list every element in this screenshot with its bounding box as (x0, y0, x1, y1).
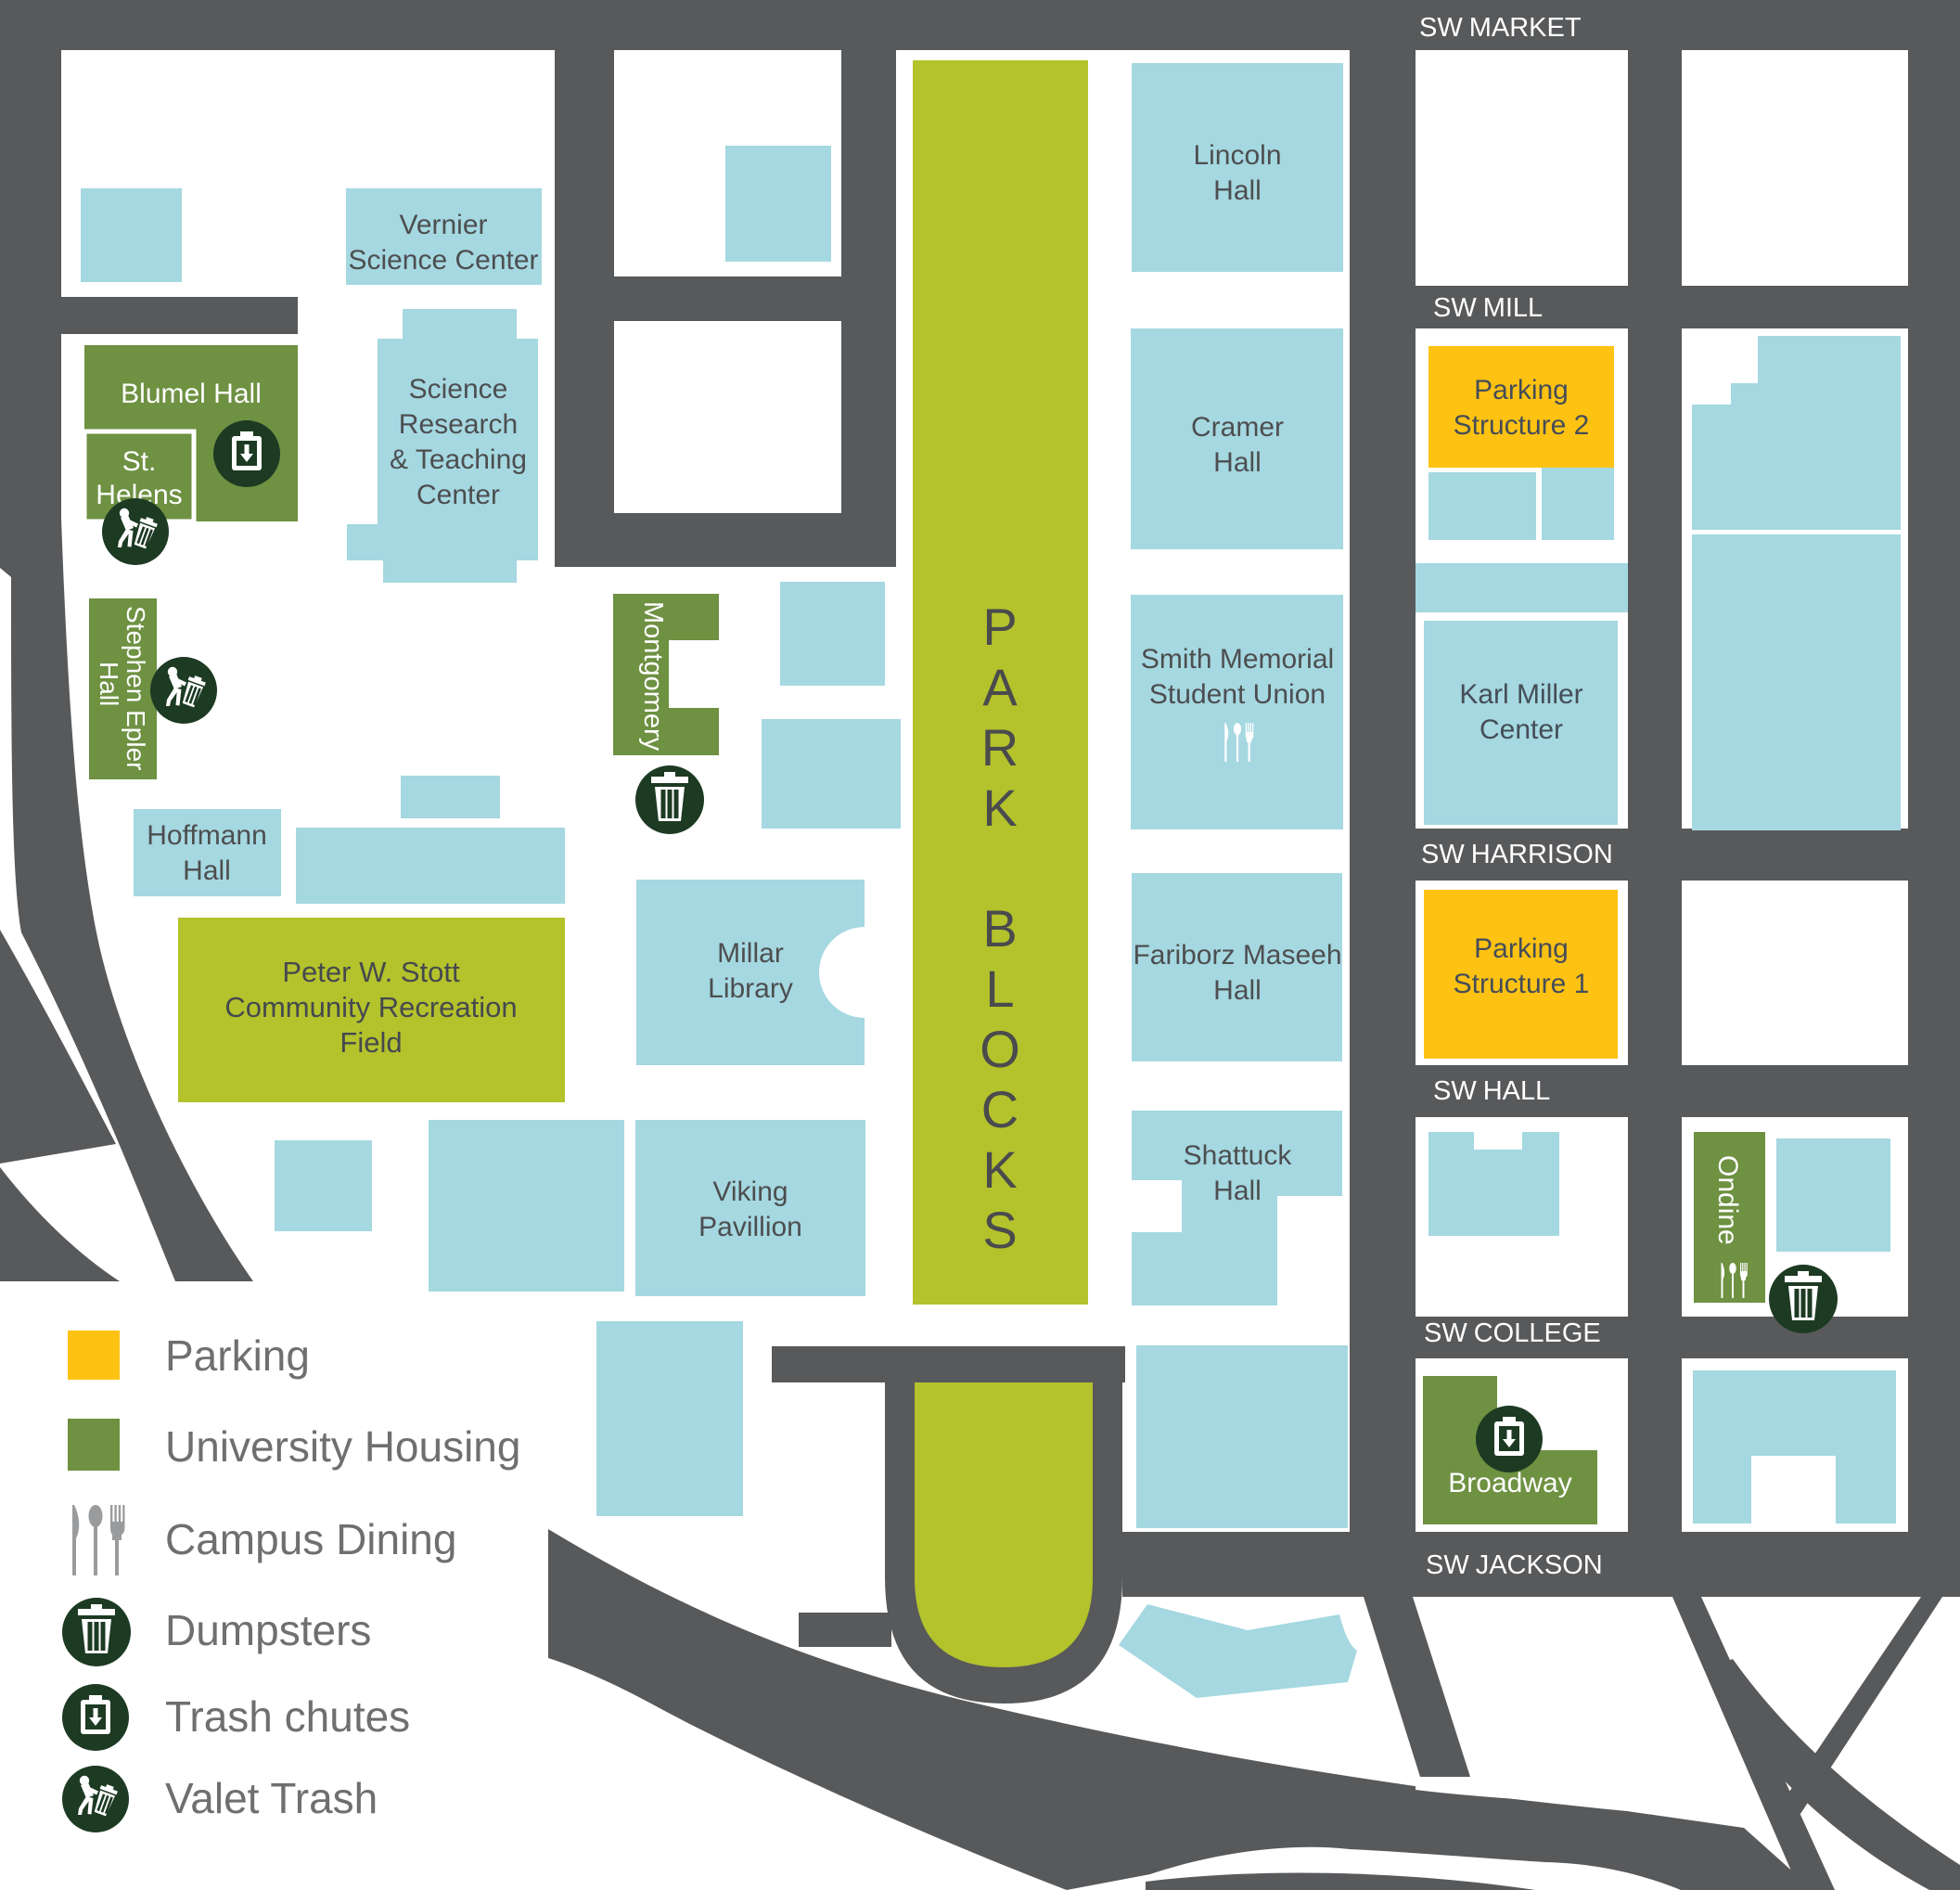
svg-text:Fariborz Maseeh: Fariborz Maseeh (1133, 940, 1341, 971)
svg-text:Trash chutes: Trash chutes (165, 1692, 410, 1741)
svg-text:Viking: Viking (712, 1176, 788, 1207)
svg-text:C: C (981, 1080, 1018, 1138)
svg-text:Montgomery: Montgomery (638, 601, 668, 752)
svg-text:Field: Field (339, 1026, 402, 1059)
svg-text:& Teaching: & Teaching (390, 444, 527, 475)
svg-text:Parking: Parking (1474, 933, 1569, 964)
svg-text:Hall: Hall (1213, 175, 1262, 206)
svg-text:Campus Dining: Campus Dining (165, 1515, 456, 1563)
svg-text:SWHARRISON: SWHARRISON (1421, 840, 1613, 869)
svg-text:Lincoln: Lincoln (1193, 140, 1281, 171)
svg-text:Student Union: Student Union (1149, 679, 1326, 710)
svg-text:Parking: Parking (165, 1331, 310, 1380)
svg-text:A: A (982, 658, 1018, 716)
svg-text:Peter W. Stott: Peter W. Stott (282, 956, 460, 988)
svg-text:K: K (982, 778, 1017, 837)
svg-text:Center: Center (416, 480, 500, 510)
svg-text:Science: Science (409, 374, 508, 405)
svg-text:Hall: Hall (1213, 447, 1262, 478)
svg-text:Hoffmann: Hoffmann (147, 820, 267, 851)
svg-text:R: R (981, 718, 1018, 777)
svg-text:S: S (982, 1201, 1017, 1259)
svg-text:Millar: Millar (717, 938, 784, 969)
svg-text:Dumpsters: Dumpsters (165, 1606, 371, 1654)
svg-text:Shattuck: Shattuck (1184, 1140, 1293, 1171)
svg-text:B: B (982, 899, 1017, 958)
svg-text:Karl Miller: Karl Miller (1459, 679, 1582, 710)
svg-text:University Housing: University Housing (165, 1422, 520, 1471)
svg-text:Parking: Parking (1474, 375, 1569, 405)
svg-text:Hall: Hall (1213, 975, 1262, 1006)
svg-text:L: L (985, 959, 1014, 1018)
svg-text:Hall: Hall (95, 662, 123, 706)
svg-text:Pavillion: Pavillion (698, 1212, 802, 1242)
svg-text:K: K (982, 1140, 1017, 1199)
svg-text:Structure 1: Structure 1 (1454, 969, 1590, 999)
svg-text:St.: St. (122, 446, 157, 477)
svg-text:Community Recreation: Community Recreation (224, 991, 517, 1023)
svg-text:Smith Memorial: Smith Memorial (1141, 644, 1334, 675)
svg-text:Hall: Hall (1213, 1176, 1262, 1206)
svg-text:Science Center: Science Center (348, 245, 538, 276)
svg-text:O: O (980, 1020, 1020, 1078)
svg-text:Blumel Hall: Blumel Hall (121, 379, 262, 409)
svg-text:Vernier: Vernier (399, 210, 487, 240)
svg-text:Structure 2: Structure 2 (1454, 410, 1590, 441)
svg-text:SWMARKET: SWMARKET (1419, 13, 1582, 43)
svg-text:Ondine: Ondine (1712, 1155, 1743, 1245)
svg-text:SWJACKSON: SWJACKSON (1426, 1550, 1603, 1580)
svg-text:SWCOLLEGE: SWCOLLEGE (1424, 1318, 1601, 1348)
svg-text:Hall: Hall (183, 855, 231, 886)
svg-text:P: P (982, 598, 1017, 656)
svg-text:Research: Research (399, 409, 518, 440)
svg-text:Valet Trash: Valet Trash (165, 1774, 378, 1822)
svg-text:Center: Center (1480, 714, 1563, 745)
svg-text:SWHALL: SWHALL (1433, 1076, 1550, 1106)
svg-text:SWMILL: SWMILL (1433, 293, 1543, 323)
svg-text:Stephen Epler: Stephen Epler (122, 606, 150, 770)
svg-text:Library: Library (708, 973, 793, 1004)
svg-text:Cramer: Cramer (1191, 412, 1284, 443)
